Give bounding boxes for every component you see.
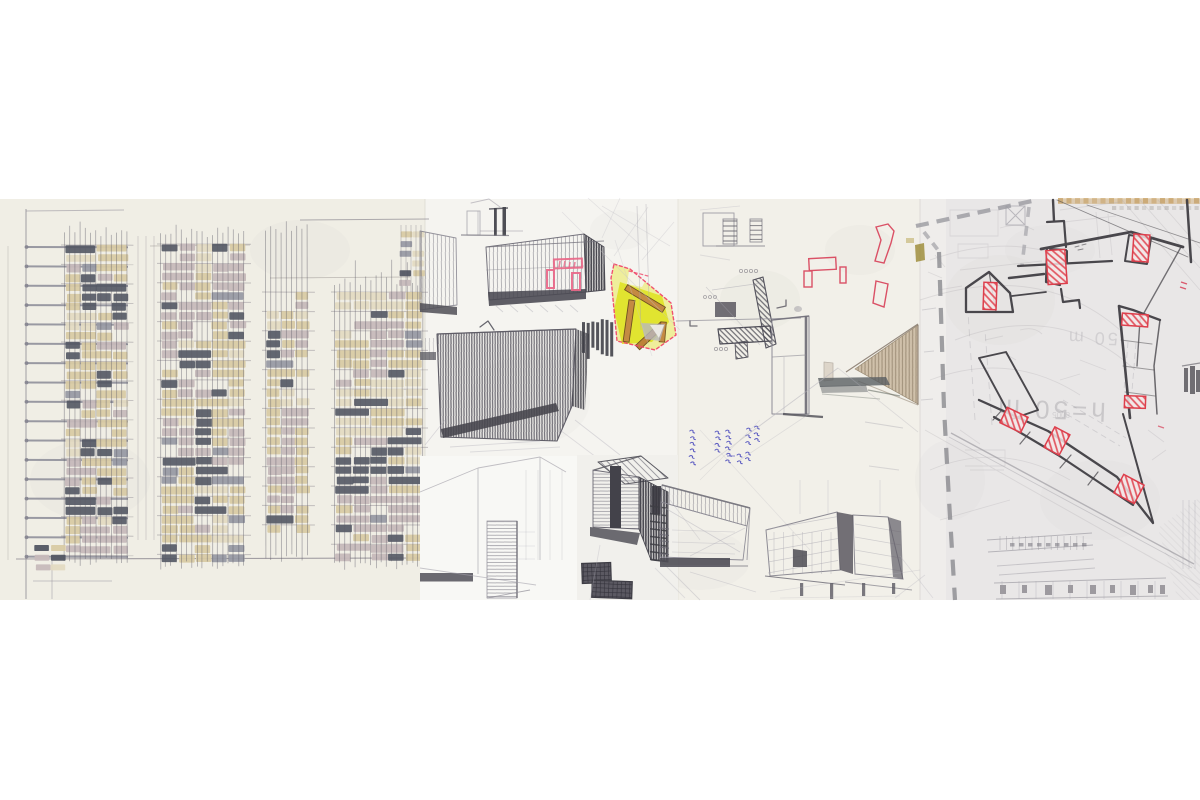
svg-text:50 m: 50 m (1065, 327, 1118, 349)
